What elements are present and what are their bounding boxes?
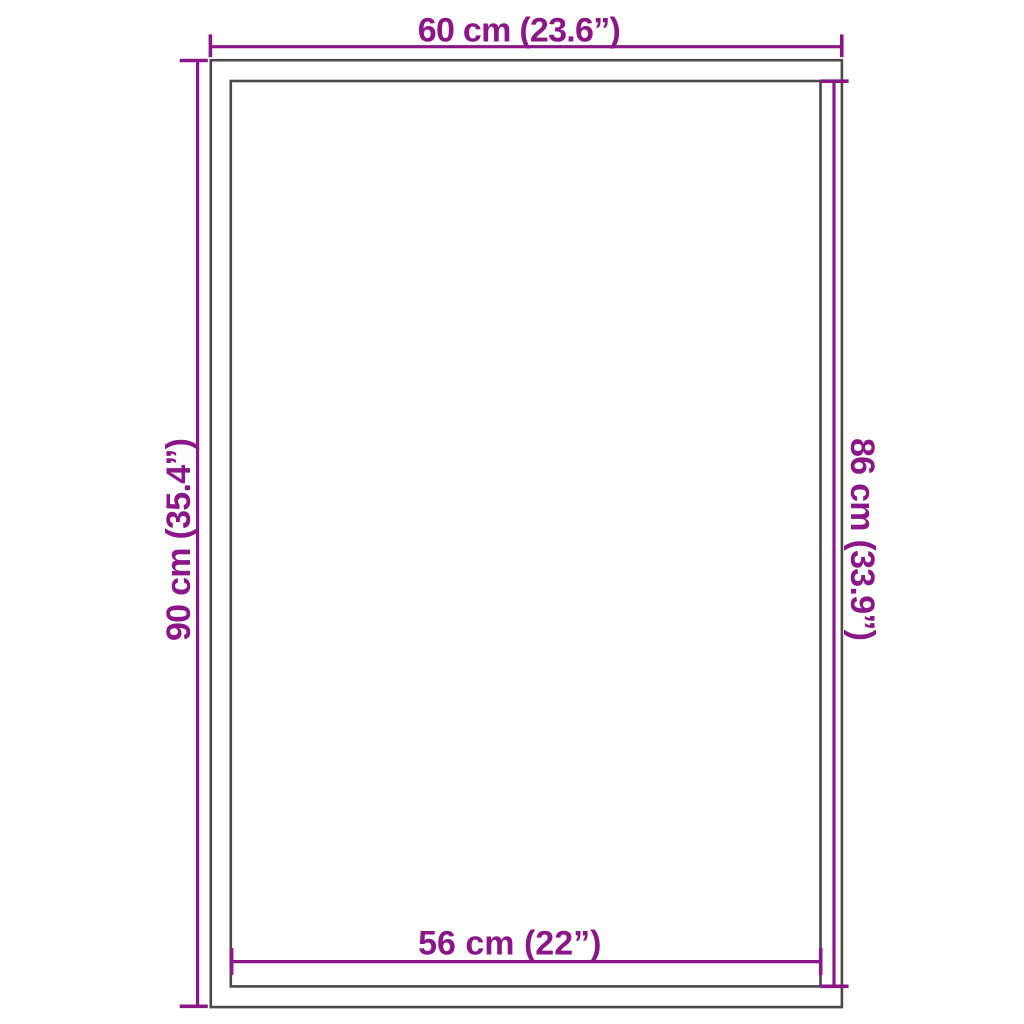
svg-text:56 cm (22”): 56 cm (22”)	[418, 925, 601, 963]
svg-text:60 cm (23.6”): 60 cm (23.6”)	[418, 11, 621, 49]
svg-text:90 cm (35.4”): 90 cm (35.4”)	[160, 438, 198, 641]
svg-text:86 cm (33.9”): 86 cm (33.9”)	[843, 438, 881, 641]
